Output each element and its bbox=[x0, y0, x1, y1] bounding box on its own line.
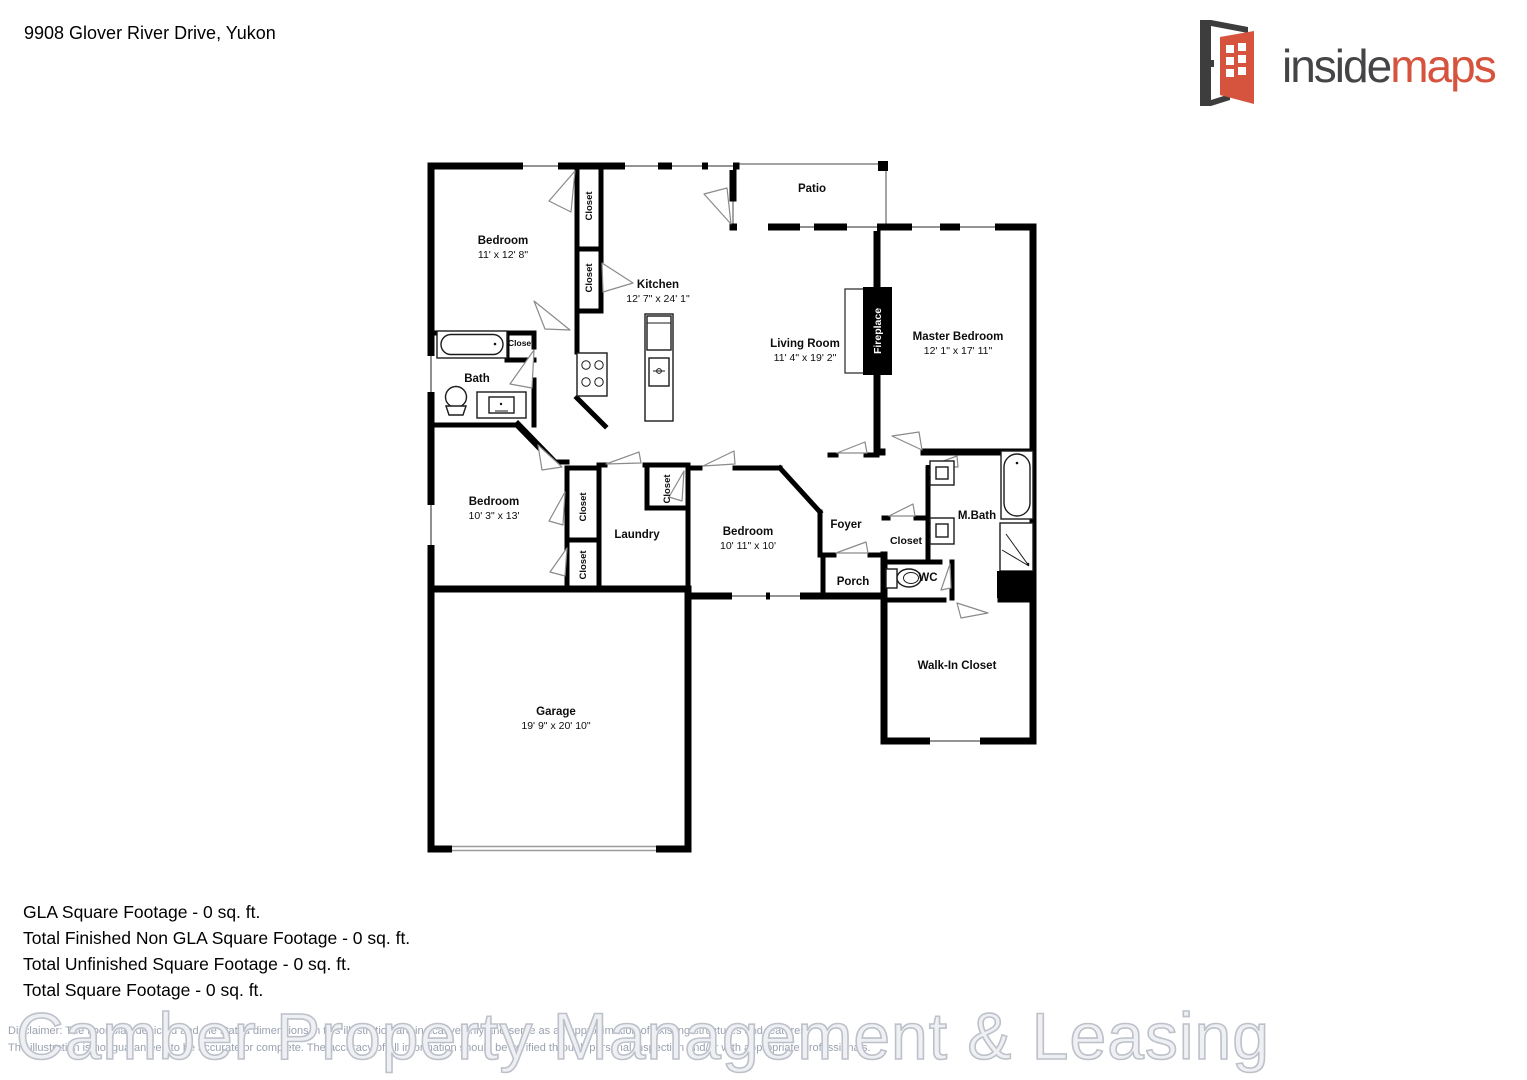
kitchen-island bbox=[645, 314, 673, 421]
label-bedroom1-name: Bedroom bbox=[478, 235, 528, 247]
mbath-tub bbox=[1001, 451, 1033, 519]
logo-inside-text: inside bbox=[1282, 40, 1390, 92]
label-bath: Bath bbox=[464, 373, 490, 385]
walls bbox=[431, 166, 1033, 849]
label-mbath: M.Bath bbox=[958, 510, 996, 522]
property-address: 9908 Glover River Drive, Yukon bbox=[24, 23, 276, 44]
label-wc: WC bbox=[918, 572, 937, 584]
label-bath-closet: Closet bbox=[508, 338, 534, 348]
label-closet-e: Closet bbox=[662, 474, 673, 504]
shower bbox=[1000, 523, 1033, 571]
label-bedroom1-dims: 11' x 12' 8" bbox=[478, 249, 528, 261]
mbath-vanity-1 bbox=[926, 461, 954, 485]
label-living-name: Living Room bbox=[770, 338, 840, 350]
label-closet-f: Closet bbox=[890, 535, 923, 547]
label-bedroom2-dims: 10' 3" x 13' bbox=[469, 510, 520, 522]
floorplan-page: 9908 Glover River Drive, Yukon insidemap… bbox=[0, 0, 1527, 1080]
square-footage-summary: GLA Square Footage - 0 sq. ft. Total Fin… bbox=[23, 899, 410, 1003]
summary-line-gla: GLA Square Footage - 0 sq. ft. bbox=[23, 899, 410, 925]
stove bbox=[577, 353, 607, 396]
bath-vanity bbox=[477, 392, 526, 418]
label-bedroom2-name: Bedroom bbox=[469, 496, 519, 508]
fireplace-box bbox=[845, 287, 892, 375]
summary-line-non-gla: Total Finished Non GLA Square Footage - … bbox=[23, 925, 410, 951]
label-kitchen-dims: 12' 7" x 24' 1" bbox=[626, 293, 690, 305]
label-foyer: Foyer bbox=[830, 519, 862, 531]
watermark-text: Camber Property Management & Leasing bbox=[16, 998, 1270, 1074]
label-master-name: Master Bedroom bbox=[913, 331, 1004, 343]
mbath-black-block bbox=[997, 571, 1033, 598]
insidemaps-logo: insidemaps bbox=[1196, 20, 1495, 111]
label-garage-dims: 19' 9" x 20' 10" bbox=[521, 720, 591, 732]
label-patio: Patio bbox=[798, 183, 826, 195]
wc-toilet bbox=[886, 569, 921, 588]
label-porch: Porch bbox=[837, 576, 870, 588]
summary-line-unfinished: Total Unfinished Square Footage - 0 sq. … bbox=[23, 951, 410, 977]
logo-wordmark: insidemaps bbox=[1282, 39, 1495, 93]
label-bedroom3-dims: 10' 11" x 10' bbox=[720, 540, 776, 552]
label-bedroom3-name: Bedroom bbox=[723, 526, 773, 538]
label-kitchen-name: Kitchen bbox=[637, 279, 679, 291]
label-closet-a: Closet bbox=[584, 191, 595, 221]
label-living-dims: 11' 4" x 19' 2" bbox=[774, 352, 837, 364]
label-fireplace: Fireplace bbox=[872, 308, 884, 354]
mbath-vanity-2 bbox=[926, 518, 954, 544]
label-closet-d: Closet bbox=[578, 550, 589, 580]
toilet bbox=[446, 387, 467, 416]
label-master-dims: 12' 1" x 17' 11" bbox=[924, 345, 993, 357]
floor-plan: Bedroom 11' x 12' 8" Closet Closet Kitch… bbox=[420, 150, 1045, 860]
door-icon bbox=[1196, 20, 1270, 111]
label-garage-name: Garage bbox=[536, 706, 576, 718]
logo-maps-text: maps bbox=[1390, 40, 1494, 92]
label-laundry: Laundry bbox=[614, 529, 660, 541]
label-closet-b: Closet bbox=[584, 263, 595, 293]
label-closet-c: Closet bbox=[578, 492, 589, 522]
bathtub bbox=[437, 331, 507, 358]
label-walkin: Walk-In Closet bbox=[918, 660, 997, 672]
